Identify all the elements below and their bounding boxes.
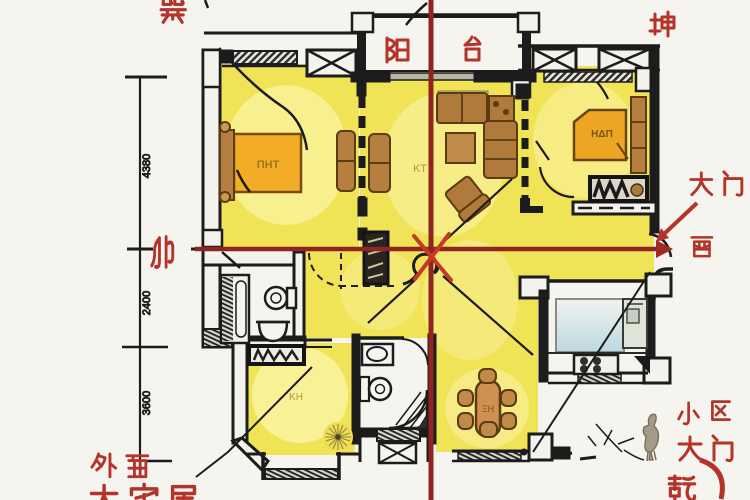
svg-text:ΗΔΠ: ΗΔΠ <box>591 129 613 140</box>
svg-text:ΠΗΤ: ΠΗΤ <box>257 159 280 171</box>
svg-text:ΞΗ: ΞΗ <box>482 404 494 414</box>
svg-text:ΚΤ: ΚΤ <box>413 163 427 175</box>
svg-text:2400: 2400 <box>141 291 153 315</box>
svg-text:ΚΗ: ΚΗ <box>289 392 303 403</box>
svg-text:3600: 3600 <box>141 391 153 415</box>
svg-text:4380: 4380 <box>141 154 153 178</box>
